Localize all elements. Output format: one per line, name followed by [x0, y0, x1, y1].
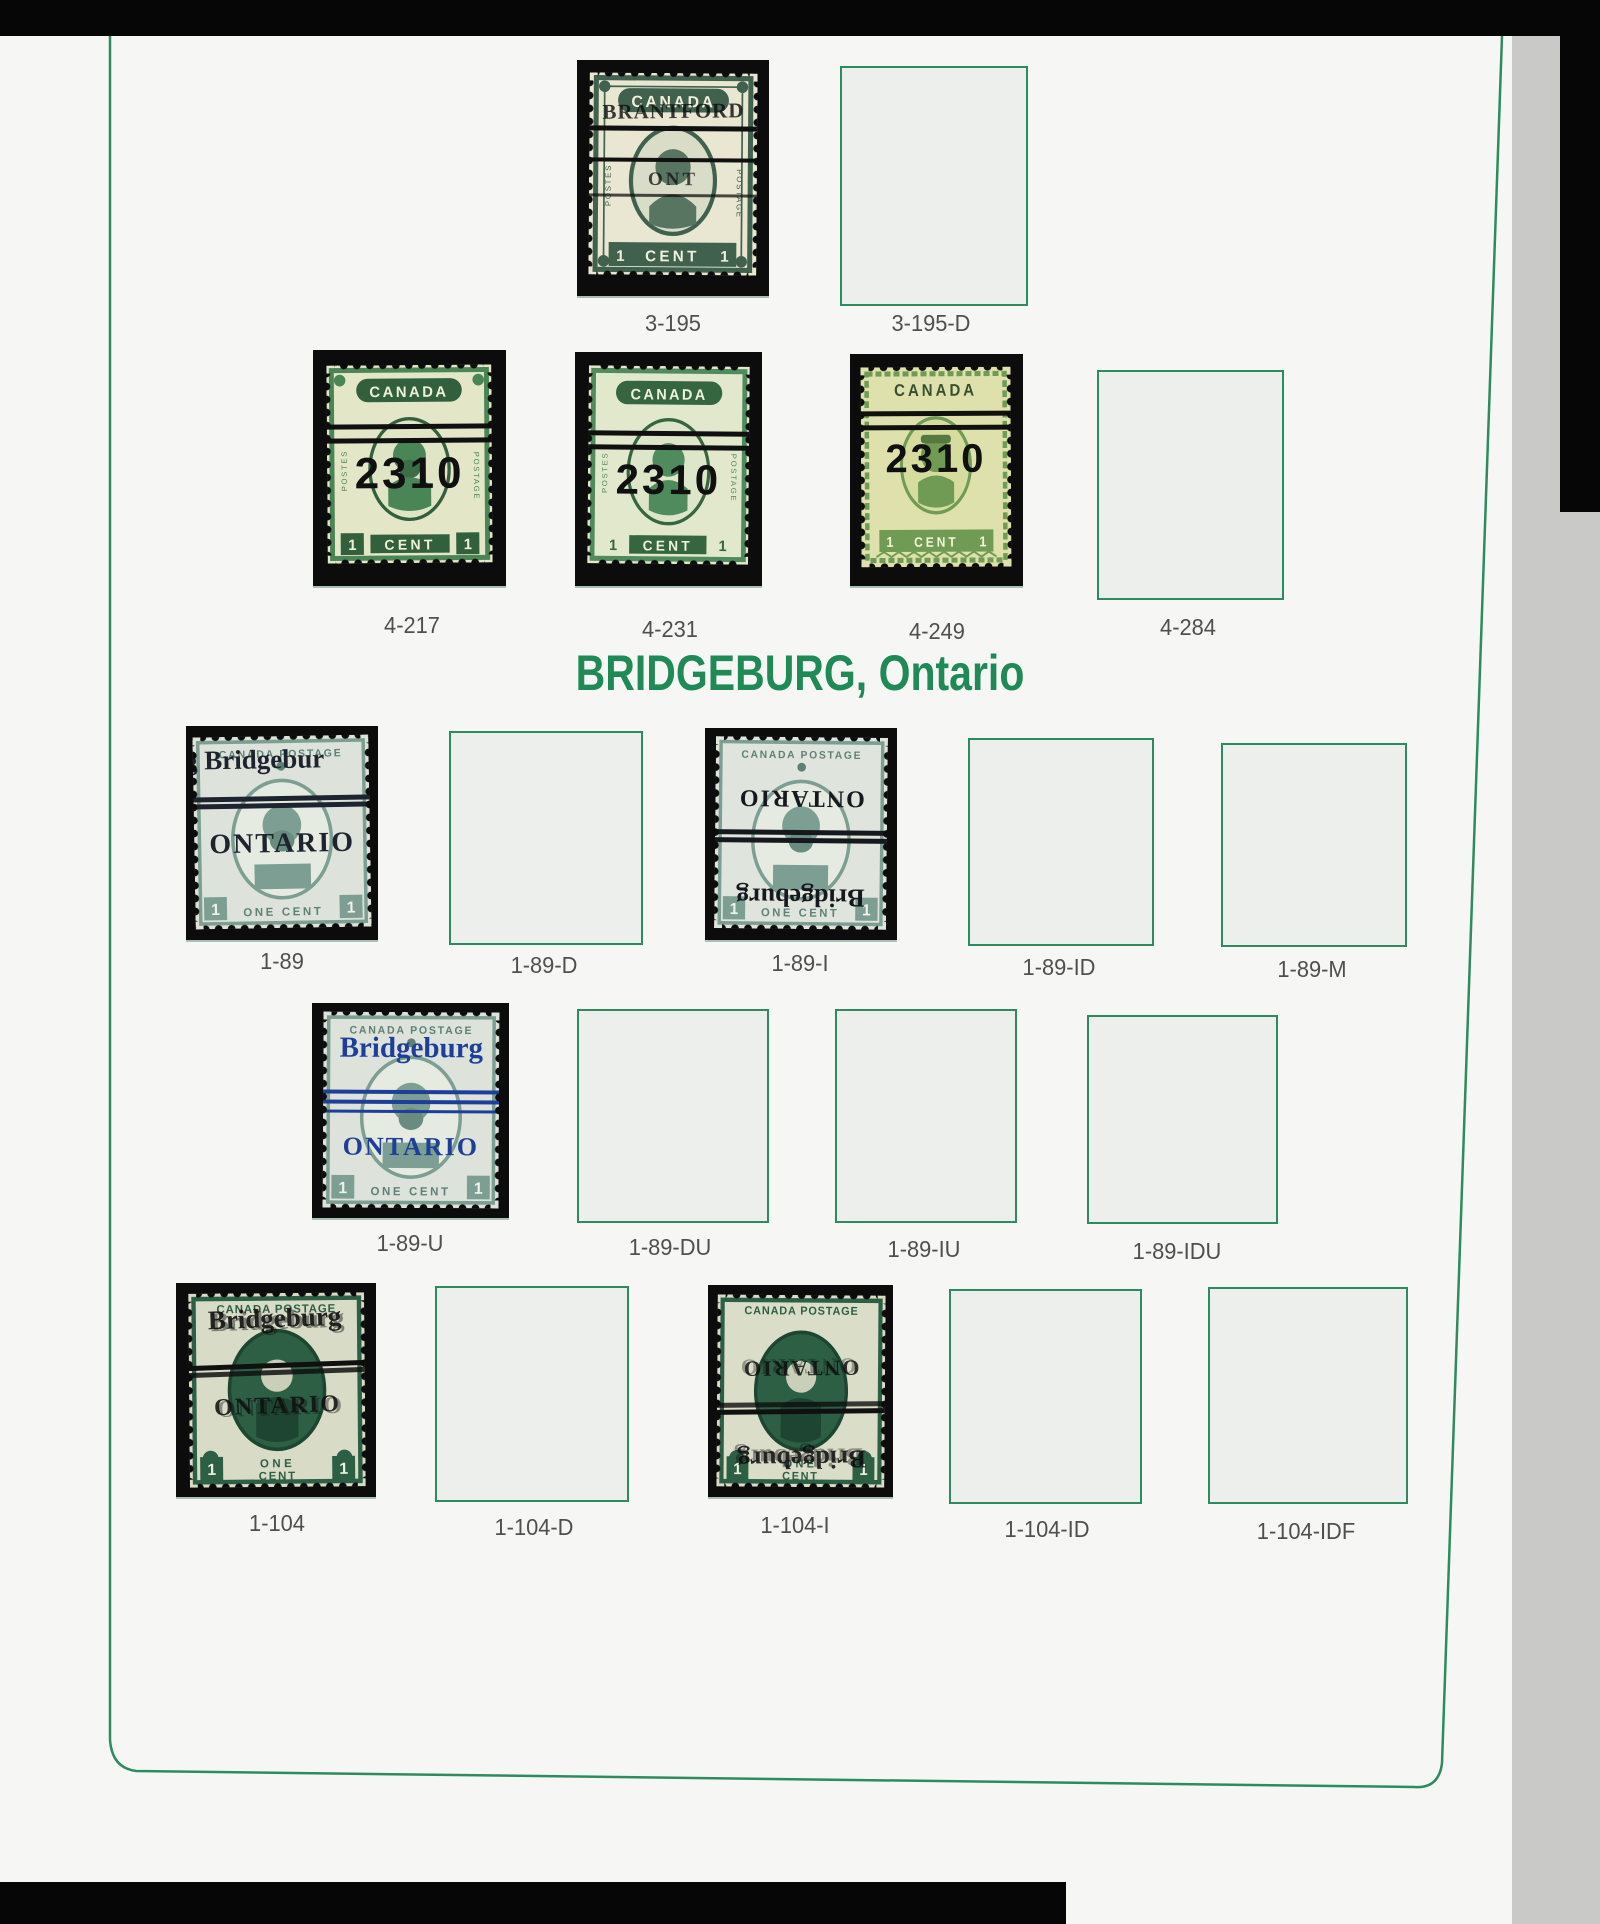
stamp-album-page-scan: Ontario CANADA POSTES POSTAGE 1 CENT 1 — [0, 0, 1600, 1924]
slot-label: 4-231 — [585, 616, 756, 642]
overprint-prov-text: ONTARIO — [189, 1391, 366, 1421]
overprint-bar — [188, 1360, 366, 1372]
empty-slot-1-104-D — [435, 1286, 629, 1502]
slot-label: 1-89-IDU — [1092, 1238, 1263, 1264]
section-title: BRIDGEBURG, Ontario — [472, 646, 1128, 700]
slot-label: 1-89-IU — [839, 1236, 1010, 1262]
section-title-text: BRIDGEBURG, Ontario — [576, 645, 1025, 701]
overprint-city-text: Bridgeburg — [714, 883, 886, 911]
overprint-bar — [716, 1408, 885, 1415]
slot-label: 1-104-D — [449, 1514, 620, 1540]
slot-label: 1-104-ID — [962, 1516, 1133, 1542]
overprint-bar — [714, 837, 888, 844]
slot-label: 1-89-I — [715, 950, 886, 976]
precancel-overprint-bridgeburg-inverted: Bridgeburg ONTARIO — [714, 736, 888, 930]
empty-slot-1-104-IDF — [1208, 1287, 1408, 1504]
overprint-city-text: Bridgeburg — [188, 1302, 363, 1335]
precancel-overprint-bridgeburg-blue: Bridgeburg ONTARIO — [322, 1012, 499, 1209]
overprint-bar — [588, 194, 757, 198]
precancel-overprint-brantford: BRANTFORD ONT — [588, 72, 757, 275]
slot-label: 3-195-D — [846, 310, 1017, 336]
overprint-city-text: BRANTFORD — [589, 100, 757, 123]
overprint-bar — [860, 411, 1011, 417]
overprint-bar — [587, 444, 750, 450]
scanner-edge-top-right — [1560, 0, 1600, 512]
overprint-bar — [322, 1100, 499, 1105]
slot-label: 1-89-U — [325, 1230, 496, 1256]
stamp-1-104-I: CANADA POSTAGE 1 1 ONE CENT Bridgeburg O… — [716, 1294, 885, 1487]
slot-label: 4-217 — [327, 612, 498, 638]
stamp-mount-4-231: CANADA POSTES POSTAGE 1 CENT 1 2310 — [575, 352, 762, 586]
overprint-number-text: 2310 — [861, 439, 1011, 480]
stamp-mount-4-217: CANADA POSTES POSTAGE 1 CENT 1 2310 — [313, 350, 506, 586]
overprint-prov-text: ONTARIO — [717, 1357, 885, 1381]
stamp-mount-1-89-I: CANADA POSTAGE 1 1 ONE CENT Bridgeburg O… — [705, 728, 897, 940]
overprint-bar — [588, 125, 757, 131]
overprint-bar — [322, 1110, 499, 1114]
stamp-4-231: CANADA POSTES POSTAGE 1 CENT 1 2310 — [587, 365, 750, 564]
overprint-city-text: Bridgeburg — [323, 1033, 499, 1063]
slot-label: 1-89-D — [459, 952, 630, 978]
overprint-bar — [326, 438, 492, 444]
empty-slot-1-104-ID — [949, 1289, 1142, 1504]
stamp-1-89-I: CANADA POSTAGE 1 1 ONE CENT Bridgeburg O… — [714, 736, 888, 930]
precancel-overprint-2310: 2310 — [326, 364, 492, 563]
empty-slot-4-284 — [1097, 370, 1284, 600]
slot-label: 1-89-M — [1227, 956, 1398, 982]
slot-label: 1-89 — [197, 948, 368, 974]
precancel-overprint-2310: 2310 — [587, 365, 750, 564]
stamp-1-104: CANADA POSTAGE 1 1 ONE CENT Bridgeburg O… — [188, 1292, 366, 1488]
overprint-city-text: g Bridgebur — [192, 744, 371, 774]
stamp-mount-1-104: CANADA POSTAGE 1 1 ONE CENT Bridgeburg O… — [176, 1283, 376, 1497]
empty-slot-1-89-IU — [835, 1009, 1017, 1223]
overprint-bar — [322, 1090, 499, 1095]
overprint-number-text: 2310 — [588, 458, 749, 501]
slot-label: 1-104-IDF — [1221, 1518, 1392, 1544]
slot-label: 1-104-I — [710, 1512, 881, 1538]
stamp-1-89: CANADA POSTAGE 1 1 ONE CENT g Bridgebur … — [192, 734, 371, 929]
empty-slot-1-89-D — [449, 731, 643, 945]
slot-label: 4-284 — [1103, 614, 1274, 640]
precancel-overprint-bridgeburg-double: Bridgeburg ONTARIO — [188, 1292, 366, 1488]
slot-label: 1-89-ID — [974, 954, 1145, 980]
stamp-4-249: CANADA 1 CENT 1 2310 — [860, 367, 1011, 568]
precancel-overprint-bridgeburg-inverted: Bridgeburg ONTARIO — [716, 1294, 885, 1487]
empty-slot-1-89-M — [1221, 743, 1407, 947]
overprint-prov-text: ONT — [589, 169, 757, 189]
stamp-4-217: CANADA POSTES POSTAGE 1 CENT 1 2310 — [326, 364, 492, 563]
slot-label: 1-104 — [192, 1510, 363, 1536]
overprint-city-text: Bridgeburg — [718, 1445, 886, 1473]
stamp-mount-1-104-I: CANADA POSTAGE 1 1 ONE CENT Bridgeburg O… — [708, 1285, 893, 1497]
overprint-bar — [587, 431, 750, 437]
stamp-mount-1-89-U: CANADA POSTAGE 1 1 ONE CENT Bridgeburg O… — [312, 1003, 509, 1218]
slot-label: 4-249 — [852, 618, 1023, 644]
precancel-overprint-bridgeburg: g Bridgebur ONTARIO — [192, 734, 371, 929]
stamp-mount-3-195: CANADA POSTES POSTAGE 1 CENT 1 BRANTFORD… — [577, 60, 769, 296]
overprint-bar — [326, 424, 492, 430]
overprint-number-text: 2310 — [327, 452, 492, 497]
empty-slot-1-89-ID — [968, 738, 1154, 946]
slot-label: 1-89-DU — [585, 1234, 756, 1260]
overprint-bar — [860, 425, 1011, 431]
overprint-bar — [192, 794, 371, 802]
stamp-3-195: CANADA POSTES POSTAGE 1 CENT 1 BRANTFORD… — [588, 72, 757, 275]
overprint-prov-text: ONTARIO — [194, 829, 370, 860]
stamp-1-89-U: CANADA POSTAGE 1 1 ONE CENT Bridgeburg O… — [322, 1012, 499, 1209]
stamp-mount-1-89: CANADA POSTAGE 1 1 ONE CENT g Bridgebur … — [186, 726, 378, 940]
overprint-bar — [588, 157, 757, 162]
precancel-overprint-2310: 2310 — [860, 367, 1011, 568]
slot-label: 3-195 — [588, 310, 759, 336]
stamp-mount-4-249: CANADA 1 CENT 1 2310 — [850, 354, 1023, 586]
scanner-edge-bottom — [0, 1882, 1066, 1924]
empty-slot-1-89-IDU — [1087, 1015, 1278, 1224]
empty-slot-3-195-D — [840, 66, 1028, 306]
overprint-prov-text: ONTARIO — [715, 785, 887, 811]
overprint-prov-text: ONTARIO — [323, 1133, 499, 1160]
empty-slot-1-89-DU — [577, 1009, 769, 1223]
scanner-edge-top — [0, 0, 1600, 36]
